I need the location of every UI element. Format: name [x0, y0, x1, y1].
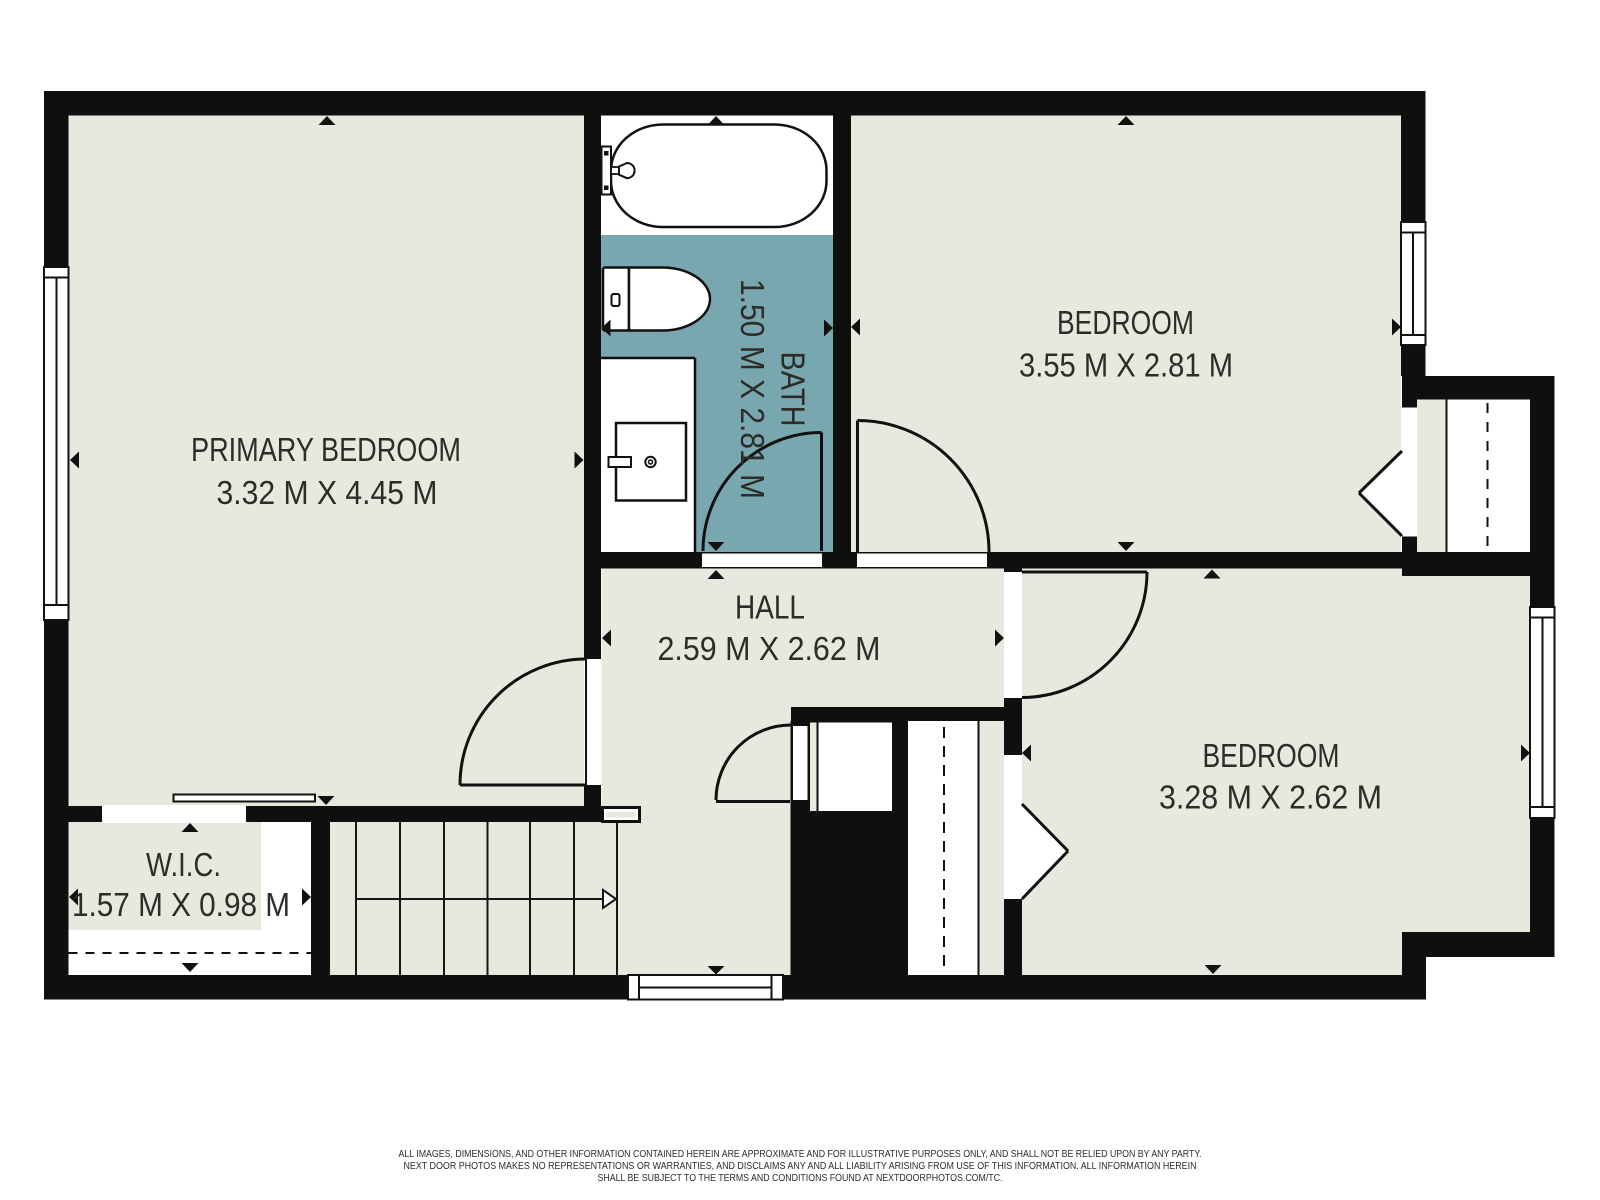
svg-text:1.50 M X 2.81 M: 1.50 M X 2.81 M [734, 279, 771, 499]
svg-text:1.57 M X 0.98 M: 1.57 M X 0.98 M [72, 886, 290, 923]
svg-text:ALL IMAGES, DIMENSIONS, AND OT: ALL IMAGES, DIMENSIONS, AND OTHER INFORM… [399, 1149, 1202, 1160]
svg-text:HALL: HALL [735, 589, 805, 626]
svg-text:BEDROOM: BEDROOM [1057, 304, 1194, 341]
svg-text:3.32 M X 4.45 M: 3.32 M X 4.45 M [217, 474, 438, 511]
svg-text:SHALL BE SUBJECT TO THE TERMS: SHALL BE SUBJECT TO THE TERMS AND CONDIT… [598, 1173, 1003, 1184]
svg-text:3.28 M X 2.62 M: 3.28 M X 2.62 M [1159, 779, 1382, 816]
svg-text:BATH: BATH [775, 352, 812, 427]
svg-text:W.I.C.: W.I.C. [146, 846, 221, 883]
svg-text:BEDROOM: BEDROOM [1203, 737, 1340, 774]
svg-text:PRIMARY BEDROOM: PRIMARY BEDROOM [191, 431, 461, 468]
svg-text:3.55 M X 2.81 M: 3.55 M X 2.81 M [1019, 347, 1233, 384]
svg-text:2.59 M X 2.62 M: 2.59 M X 2.62 M [658, 630, 881, 667]
svg-text:NEXT DOOR PHOTOS MAKES NO REPR: NEXT DOOR PHOTOS MAKES NO REPRESENTATION… [404, 1161, 1197, 1172]
